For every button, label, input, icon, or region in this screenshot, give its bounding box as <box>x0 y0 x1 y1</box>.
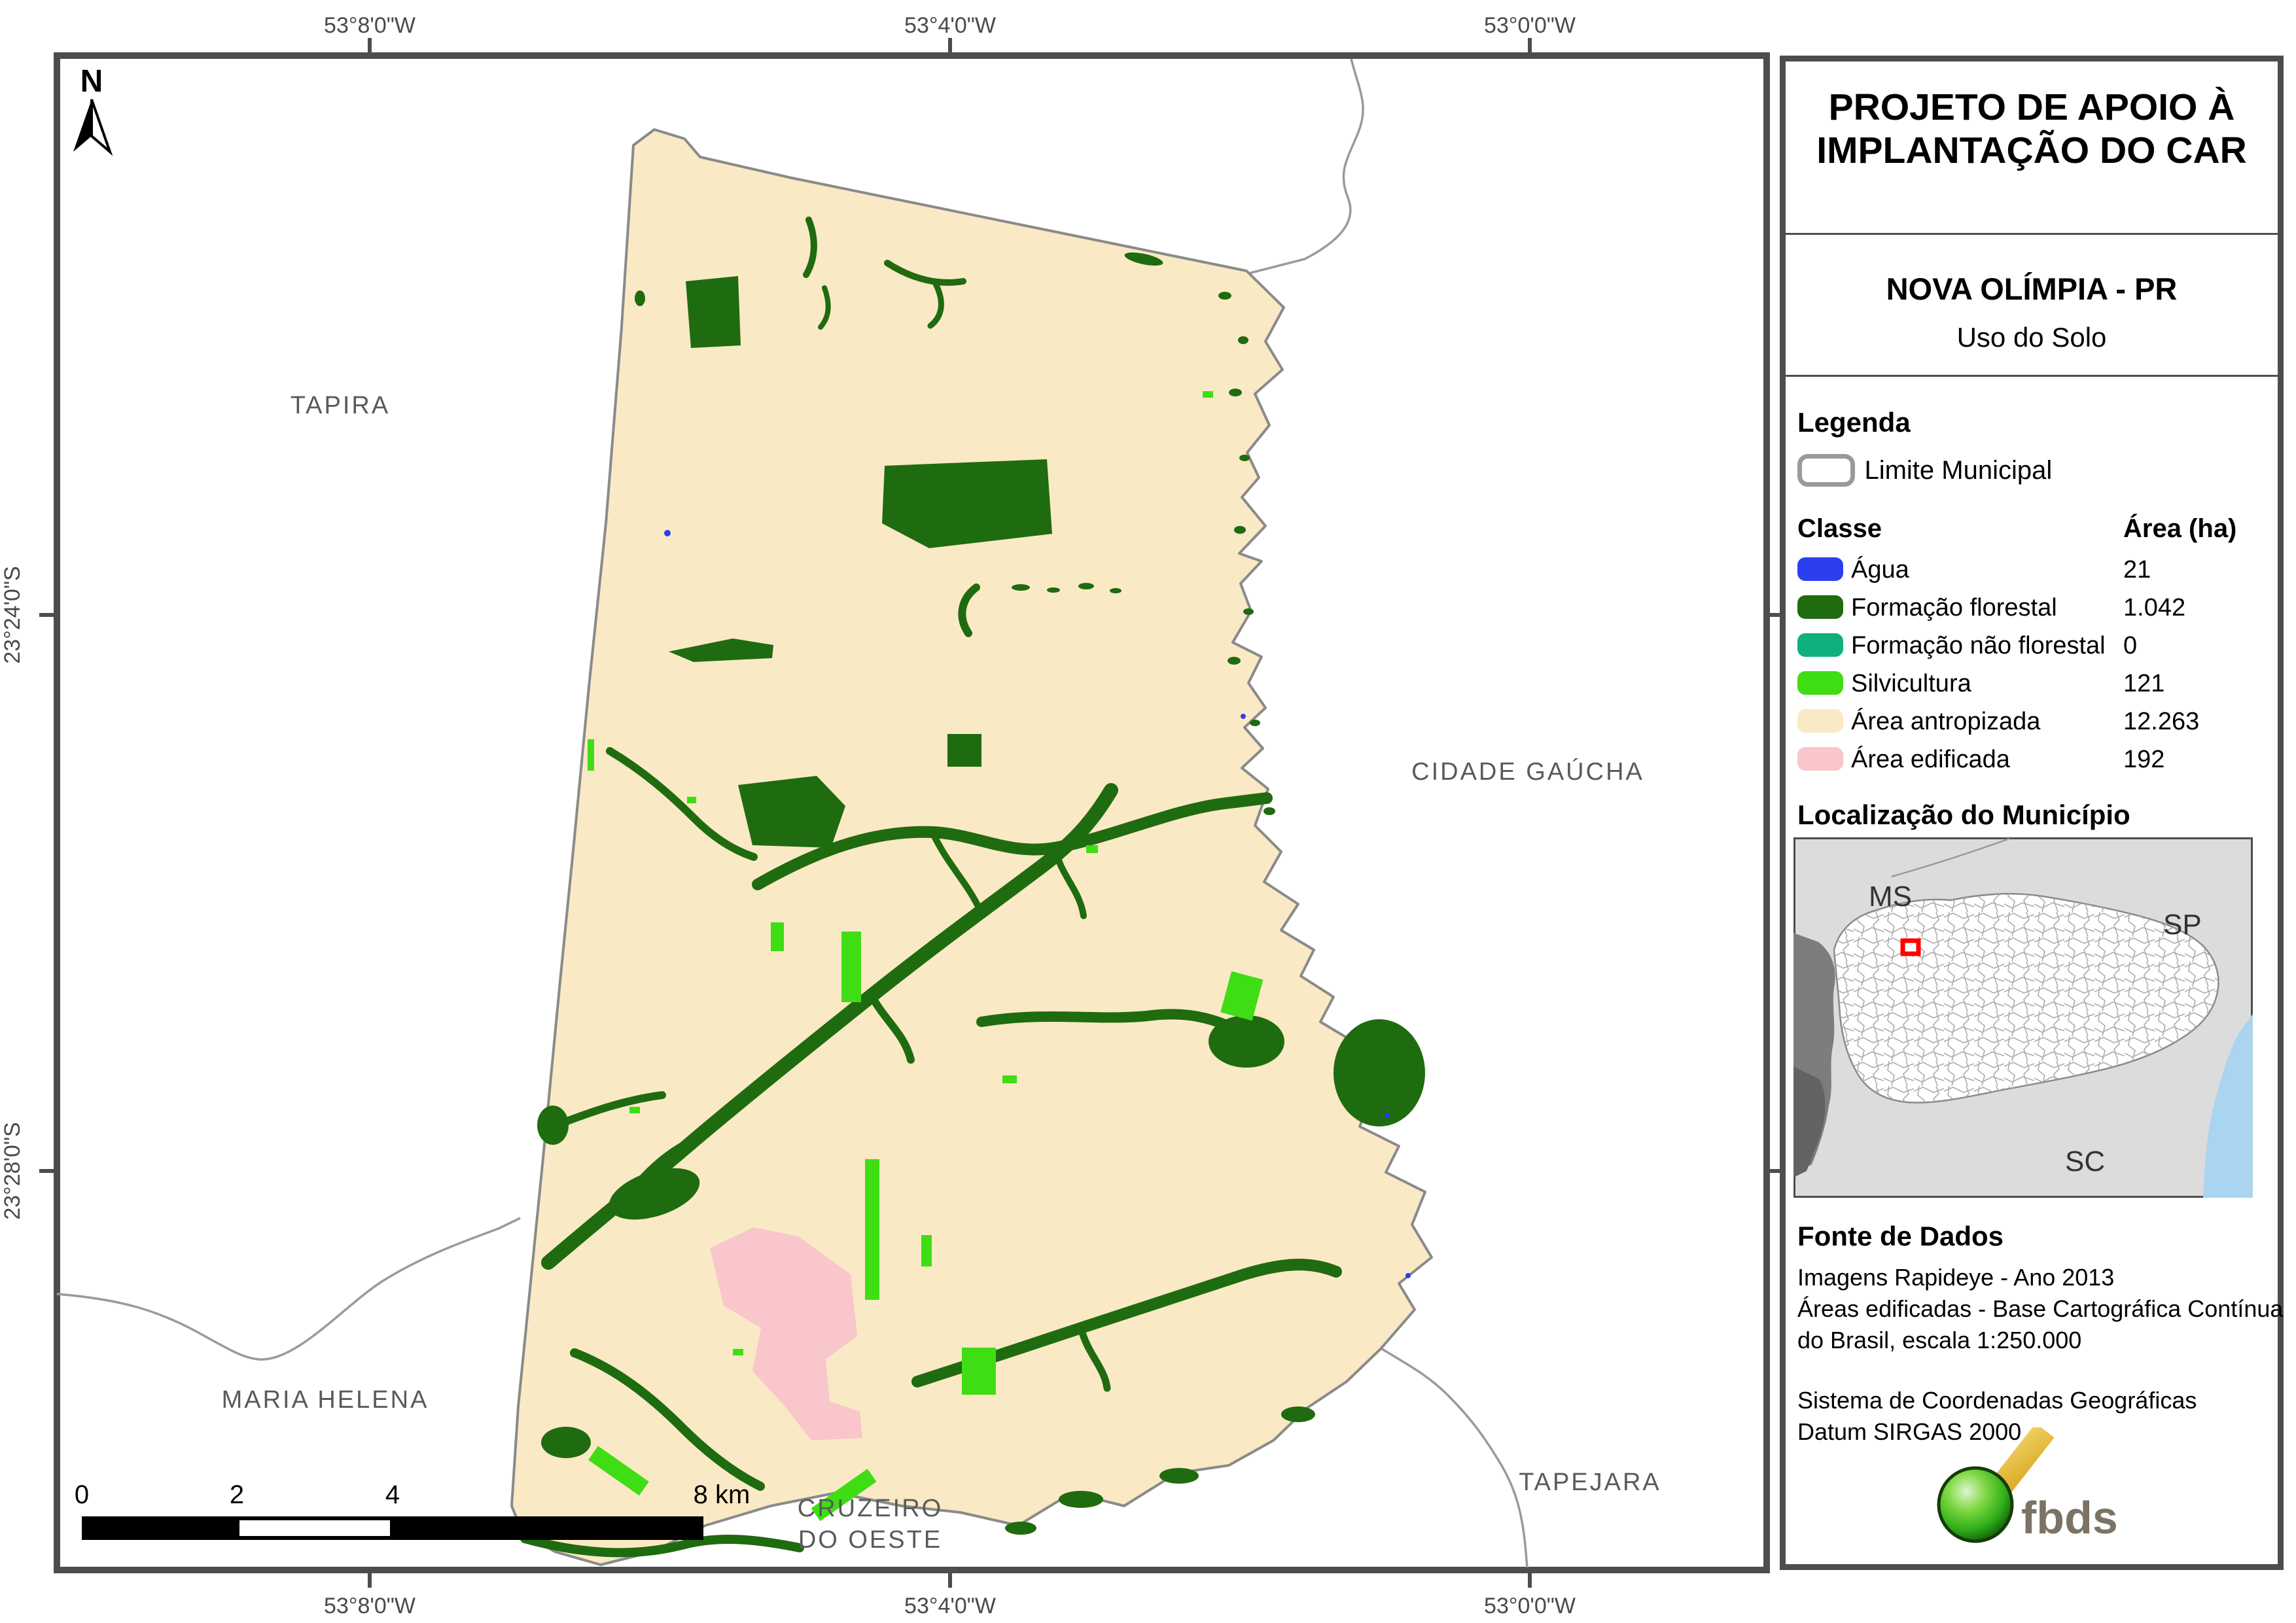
inset-label-sc: SC <box>2065 1145 2105 1178</box>
legend-limite-row: Limite Municipal <box>1797 454 2052 485</box>
fonte-line: Sistema de Coordenadas Geográficas <box>1797 1387 2197 1414</box>
limite-municipal-label: Limite Municipal <box>1864 456 2052 485</box>
legend-label: Formação florestal <box>1851 594 2057 622</box>
water-swatch <box>1797 557 1843 581</box>
legend-area: 0 <box>2123 632 2137 660</box>
forest-swatch <box>1797 595 1843 619</box>
lat-label: 23°24'0"S <box>0 566 25 663</box>
label-tapira: TAPIRA <box>291 392 390 419</box>
legend-area: 12.263 <box>2123 708 2199 736</box>
divider <box>1786 233 2278 235</box>
lon-label: 53°8'0"W <box>324 13 415 38</box>
info-panel: PROJETO DE APOIO À IMPLANTAÇÃO DO CAR NO… <box>1780 56 2284 1570</box>
lon-label: 53°8'0"W <box>324 1594 415 1618</box>
legend-row: Formação florestal 1.042 <box>1797 594 2262 623</box>
inset-label-sp: SP <box>2163 909 2202 941</box>
divider <box>1786 375 2278 377</box>
label-cidade-gaucha: CIDADE GAÚCHA <box>1411 758 1644 786</box>
legend-label: Silvicultura <box>1851 670 1971 698</box>
legend-label: Área edificada <box>1851 746 2010 774</box>
map-subtitle: Uso do Solo <box>1786 322 2278 353</box>
label-maria-helena: MARIA HELENA <box>222 1386 429 1414</box>
localizacao-heading: Localização do Município <box>1797 799 2130 831</box>
nonforest-swatch <box>1797 633 1843 657</box>
fbds-logo: fbds <box>1932 1427 2128 1552</box>
legend-heading: Legenda <box>1797 407 1911 438</box>
fonte-heading: Fonte de Dados <box>1797 1221 2004 1252</box>
fonte-line: Áreas edificadas - Base Cartográfica Con… <box>1797 1295 2283 1323</box>
legend-area: 192 <box>2123 746 2164 774</box>
lon-label: 53°4'0"W <box>904 13 996 38</box>
legend-area: 21 <box>2123 556 2151 584</box>
scale-tick: 2 <box>230 1480 244 1509</box>
legend-label: Água <box>1851 556 1909 584</box>
legend-row: Área antropizada 12.263 <box>1797 708 2262 737</box>
label-cruzeiro-2: DO OESTE <box>798 1526 942 1554</box>
label-tapejara: TAPEJARA <box>1519 1469 1661 1496</box>
locator-map: MS SP SC <box>1793 837 2253 1198</box>
logo-text: fbds <box>2021 1492 2118 1543</box>
lat-label: 23°28'0"S <box>0 1122 25 1219</box>
legend-col-classe: Classe <box>1797 514 1882 544</box>
legend-row: Área edificada 192 <box>1797 746 2262 775</box>
legend-row: Água 21 <box>1797 556 2262 585</box>
legend-row: Silvicultura 121 <box>1797 670 2262 699</box>
limite-municipal-swatch <box>1797 454 1855 487</box>
scale-tick: 0 <box>75 1480 89 1509</box>
anthropized-swatch <box>1797 709 1843 733</box>
legend-area: 121 <box>2123 670 2164 698</box>
north-label: N <box>80 64 103 99</box>
legend-label: Formação não florestal <box>1851 632 2106 660</box>
logo-sphere <box>1939 1468 2012 1541</box>
lon-label: 53°0'0"W <box>1484 13 1576 38</box>
legend-row: Formação não florestal 0 <box>1797 632 2262 661</box>
legend-col-area: Área (ha) <box>2123 514 2236 544</box>
silviculture-swatch <box>1797 671 1843 695</box>
municipality-marker <box>1903 941 1918 954</box>
fonte-line: Imagens Rapideye - Ano 2013 <box>1797 1264 2114 1291</box>
scale-tick: 8 km <box>694 1480 751 1509</box>
legend-area: 1.042 <box>2123 594 2185 622</box>
scale-tick: 4 <box>385 1480 400 1509</box>
municipality-title: NOVA OLÍMPIA - PR <box>1786 271 2278 307</box>
fonte-line: do Brasil, escala 1:250.000 <box>1797 1327 2081 1354</box>
inset-label-ms: MS <box>1869 881 1912 913</box>
label-cruzeiro-1: CRUZEIRO <box>798 1495 943 1522</box>
lon-label: 53°4'0"W <box>904 1594 996 1618</box>
map-sheet: 53°8'0"W 53°4'0"W 53°0'0"W 53°8'0"W 53°4… <box>0 0 2296 1623</box>
legend-label: Área antropizada <box>1851 708 2040 736</box>
lon-label: 53°0'0"W <box>1484 1594 1576 1618</box>
sheet-title: PROJETO DE APOIO À IMPLANTAÇÃO DO CAR <box>1786 86 2278 172</box>
built-swatch <box>1797 747 1843 771</box>
